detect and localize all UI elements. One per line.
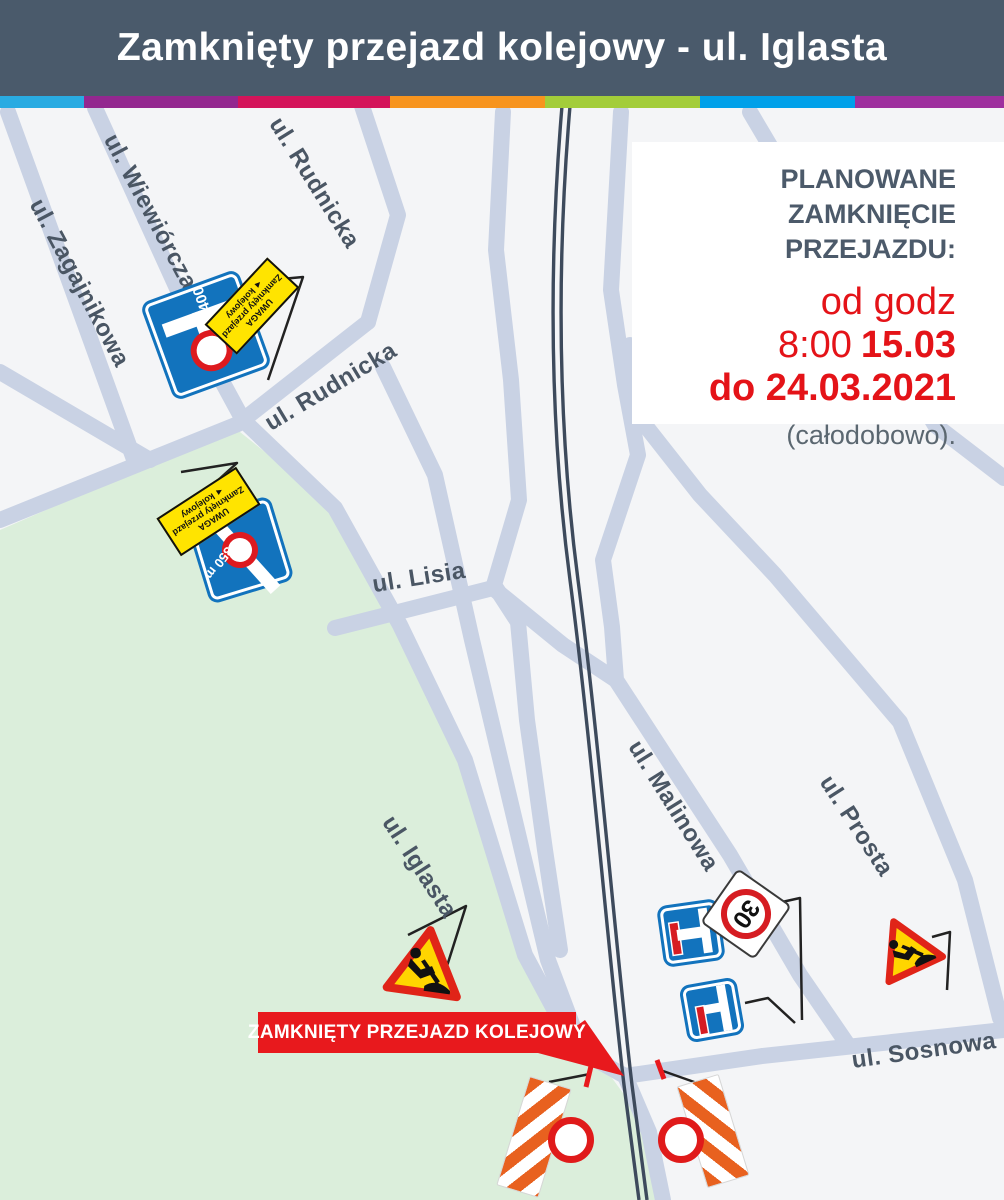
roadworks-sign-icon bbox=[379, 920, 472, 1005]
stripe-segment bbox=[700, 96, 855, 108]
stripe-segment bbox=[238, 96, 390, 108]
poster: Zamknięty przejazd kolejowy - ul. Iglast… bbox=[0, 0, 1004, 1200]
closure-period-start: od godz 8:0015.03 bbox=[642, 281, 956, 367]
stripe-segment bbox=[390, 96, 545, 108]
closure-notice-box: PLANOWANE ZAMKNIĘCIE PRZEJAZDU: od godz … bbox=[632, 142, 1004, 424]
decorative-stripe bbox=[0, 96, 1004, 108]
no-entry-sign-icon bbox=[548, 1117, 594, 1163]
notice-title-line: PRZEJAZDU: bbox=[642, 232, 956, 267]
stripe-segment bbox=[0, 96, 84, 108]
notice-title-line: ZAMKNIĘCIE bbox=[642, 197, 956, 232]
page-title: Zamknięty przejazd kolejowy - ul. Iglast… bbox=[117, 26, 887, 70]
stripe-segment bbox=[545, 96, 700, 108]
roadworks-glyph bbox=[379, 920, 472, 1005]
header-bar: Zamknięty przejazd kolejowy - ul. Iglast… bbox=[0, 0, 1004, 96]
closure-note: (całodobowo). bbox=[642, 420, 956, 451]
dead-end-sign-rotated-icon bbox=[678, 976, 745, 1043]
closure-period-end: do 24.03.2021 bbox=[642, 367, 956, 410]
notice-title-line: PLANOWANE bbox=[642, 162, 956, 197]
stripe-segment bbox=[855, 96, 1004, 108]
stripe-segment bbox=[84, 96, 238, 108]
closed-crossing-banner: ZAMKNIĘTY PRZEJAZD KOLEJOWY bbox=[258, 1012, 576, 1053]
no-entry-sign-icon bbox=[658, 1117, 704, 1163]
period-start-date: 15.03 bbox=[861, 324, 956, 366]
